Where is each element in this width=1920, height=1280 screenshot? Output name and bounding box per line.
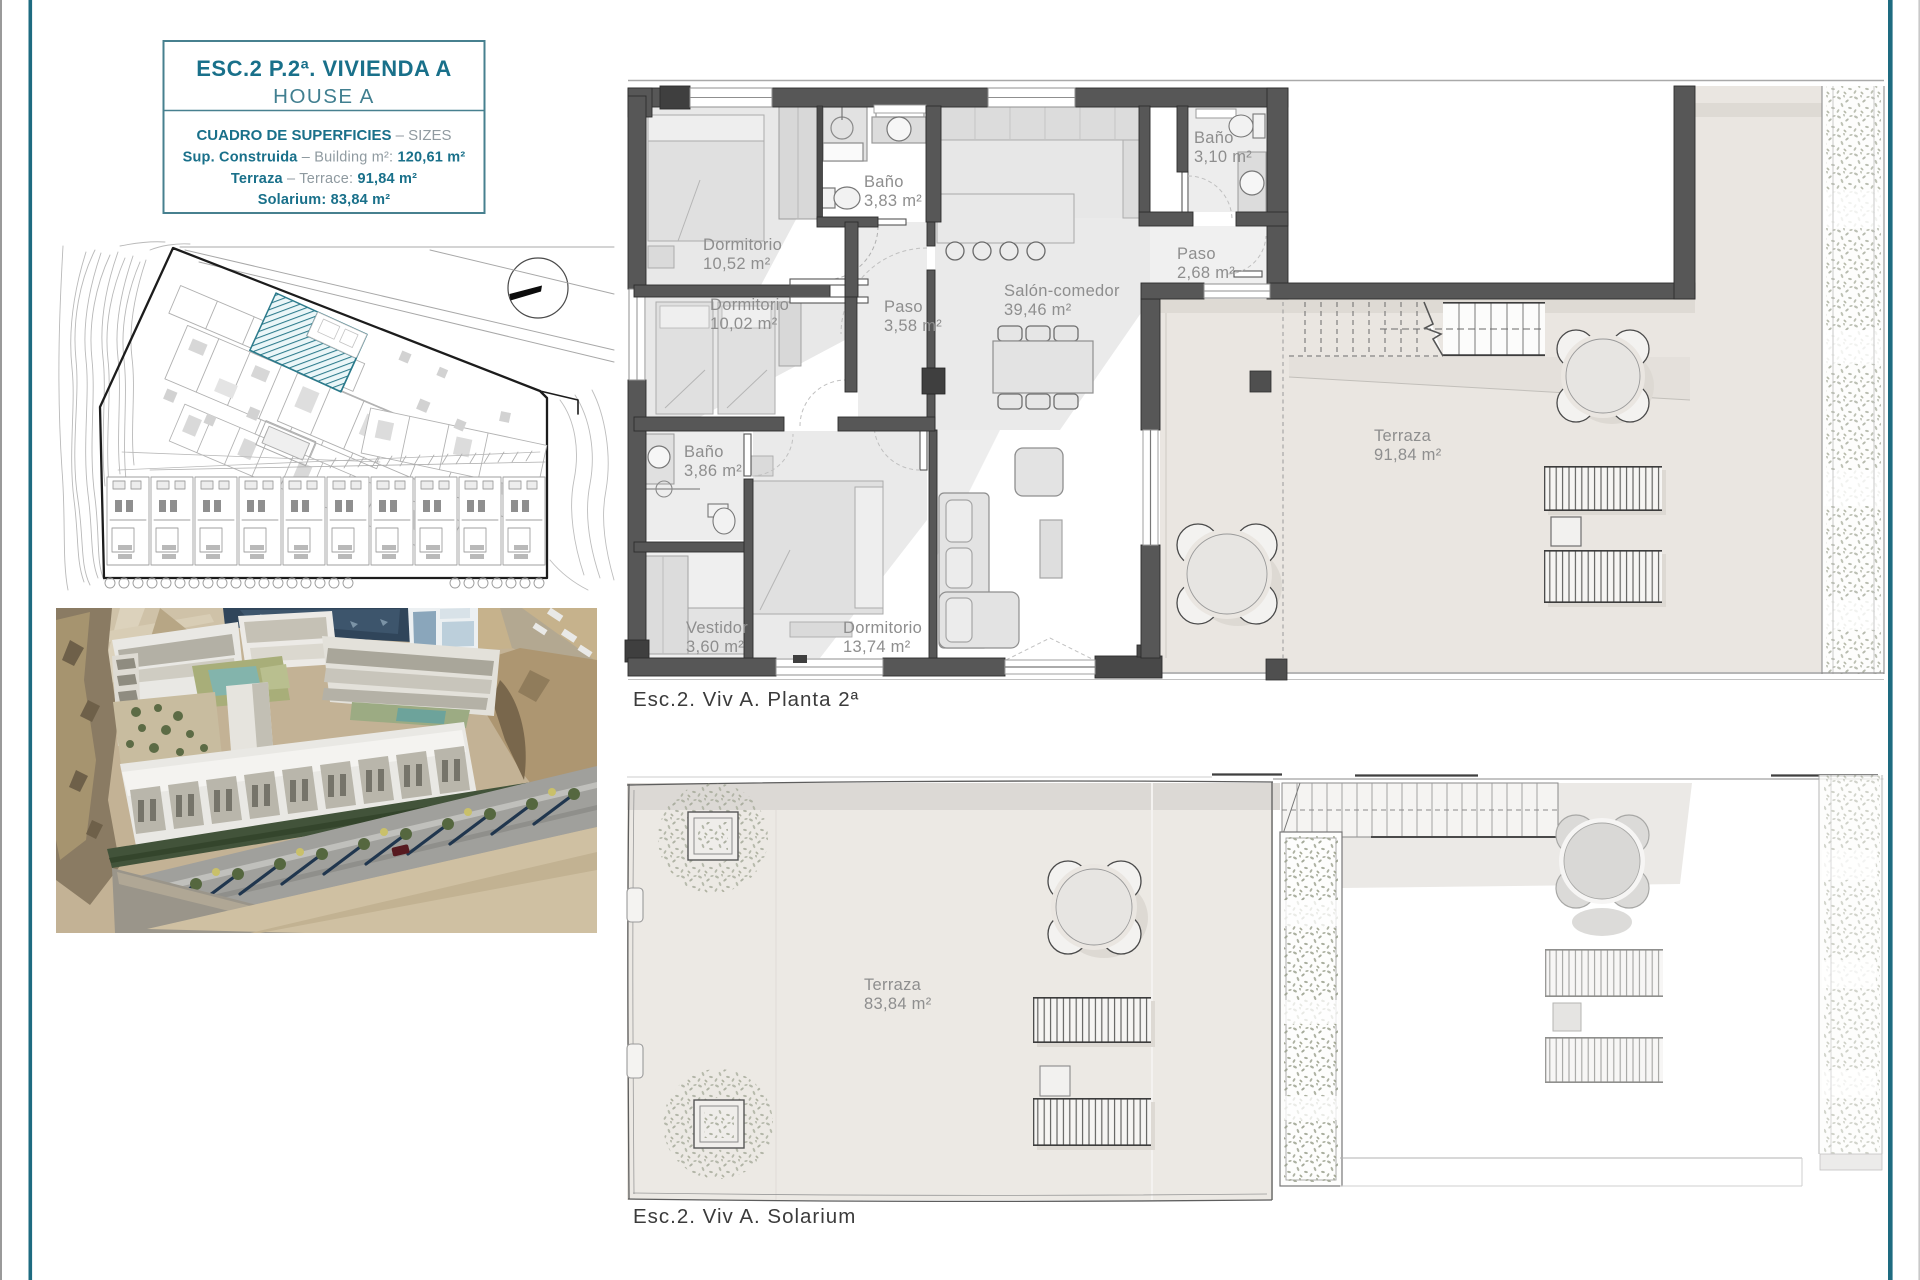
svg-text:13,74 m²: 13,74 m² [843,638,911,656]
svg-text:Terraza: Terraza [864,976,922,994]
svg-text:Terraza: Terraza [1374,427,1432,445]
svg-text:Dormitorio: Dormitorio [703,236,782,254]
svg-text:83,84 m²: 83,84 m² [864,995,932,1013]
svg-text:Esc.2. Viv A. Planta 2ª: Esc.2. Viv A. Planta 2ª [633,688,859,711]
svg-text:Terraza – Terrace: 91,84 m²: Terraza – Terrace: 91,84 m² [231,171,417,187]
svg-text:Esc.2. Viv A. Solarium: Esc.2. Viv A. Solarium [633,1205,856,1228]
svg-text:Salón-comedor: Salón-comedor [1004,282,1120,300]
svg-text:39,46 m²: 39,46 m² [1004,301,1072,319]
svg-text:Baño: Baño [1194,129,1234,147]
svg-text:ESC.2 P.2ª. VIVIENDA A: ESC.2 P.2ª. VIVIENDA A [196,56,452,81]
svg-text:91,84 m²: 91,84 m² [1374,446,1442,464]
svg-text:3,60 m²: 3,60 m² [686,638,744,656]
svg-text:Solarium: 83,84 m²: Solarium: 83,84 m² [258,192,391,208]
svg-text:CUADRO DE SUPERFICIES – SIZES: CUADRO DE SUPERFICIES – SIZES [196,127,451,144]
svg-text:Paso: Paso [884,298,923,316]
svg-text:2,68 m²: 2,68 m² [1177,264,1235,282]
svg-text:Dormitorio: Dormitorio [710,296,789,314]
svg-text:HOUSE A: HOUSE A [273,85,375,108]
svg-text:3,10 m²: 3,10 m² [1194,148,1252,166]
svg-text:3,83 m²: 3,83 m² [864,192,922,210]
svg-text:10,02 m²: 10,02 m² [710,315,778,333]
svg-text:3,86 m²: 3,86 m² [684,462,742,480]
svg-text:3,58 m²: 3,58 m² [884,317,942,335]
svg-text:Dormitorio: Dormitorio [843,619,922,637]
svg-text:Baño: Baño [684,443,724,461]
svg-text:10,52 m²: 10,52 m² [703,255,771,273]
svg-text:Baño: Baño [864,173,904,191]
svg-text:Vestidor: Vestidor [686,619,748,637]
svg-text:Paso: Paso [1177,245,1216,263]
svg-text:Sup. Construida – Building m²:: Sup. Construida – Building m²: 120,61 m² [183,150,466,166]
